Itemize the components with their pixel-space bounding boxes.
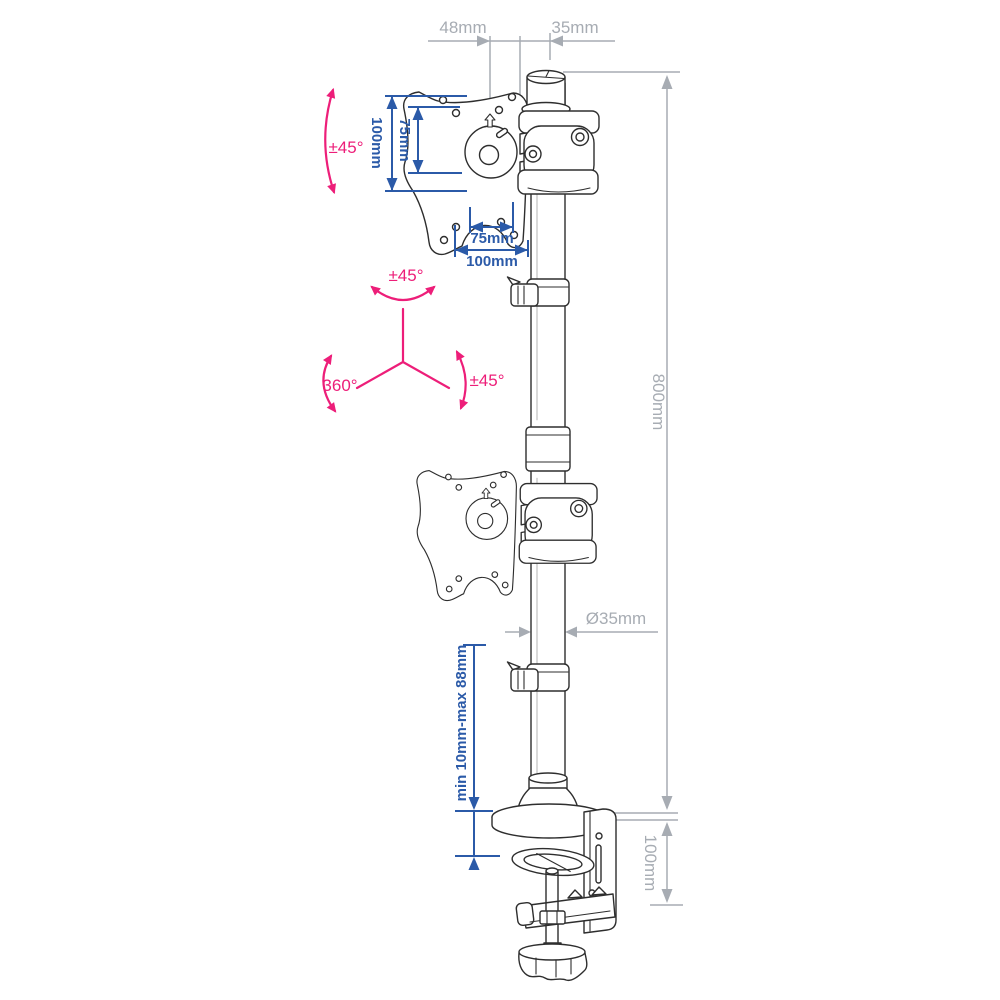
vesa-hole [509,94,516,101]
jaw-tooth [568,890,582,898]
dim-label-clamp-height: 100mm [641,835,660,892]
dim-label-pole-height: 800mm [649,374,668,431]
dim-label-top-offset: 48mm [439,18,486,37]
arrowhead-up [662,75,673,89]
mount-line-art [404,71,616,981]
bracket-bolt-center [576,133,584,141]
dim-label-vesa-vertical-outer: 100mm [368,117,385,169]
arrowhead-down [662,796,673,810]
screw-nut [540,911,565,924]
head-bracket-lower [519,484,597,564]
rotation-axes [357,309,449,388]
plate-center-hole [480,146,499,165]
pole-junction-sleeve [526,427,570,471]
vesa-hole [453,110,460,117]
pole-cap [522,71,570,116]
mount-diagram: 48mm 35mm 800mm 100mm Ø35mm [0,0,1000,1000]
arrowhead-left [565,627,577,638]
dim-label-vesa-vertical-inner: 75mm [396,118,413,161]
rotation-label-swivel: ±45° [388,266,423,285]
dim-label-vesa-horizontal-inner: 75mm [470,230,513,247]
cable-clip-upper [508,277,570,306]
vesa-hole [496,107,503,114]
desk-clamp [492,773,616,980]
diagram-svg: 48mm 35mm 800mm 100mm Ø35mm [0,0,1000,1000]
dim-label-clamp-range: min 10mm-max 88mm [453,645,470,802]
bracket-flange [518,170,598,194]
rotation-label-base: 360° [322,376,357,395]
vesa-hole [440,97,447,104]
head-bracket-upper [518,111,599,194]
thumb-knob-top [519,944,585,960]
dim-label-pole-diameter: Ø35mm [586,609,646,628]
swivel-arc [372,287,434,300]
cable-clip-lower [508,662,570,691]
arrowhead-right [477,36,490,47]
pivot-arc [457,352,466,408]
arrowhead-down [662,889,673,903]
dim-label-vesa-horizontal-outer: 100mm [466,253,518,270]
rotation-label-pivot: ±45° [469,371,504,390]
bracket-bolt-center [530,151,537,158]
plate-screw-hole [596,833,602,839]
rotation-indicator: ±45° 360° ±45° [322,266,504,411]
plate-slot [596,845,601,883]
vesa-hole [441,237,448,244]
dim-label-cap-width: 35mm [551,18,598,37]
rotation-label-tilt: ±45° [328,138,363,157]
arrowhead-right [519,627,531,638]
vesa-plate-lower [417,471,516,601]
arrowhead-left [550,36,563,47]
arrowhead-up [662,822,673,836]
